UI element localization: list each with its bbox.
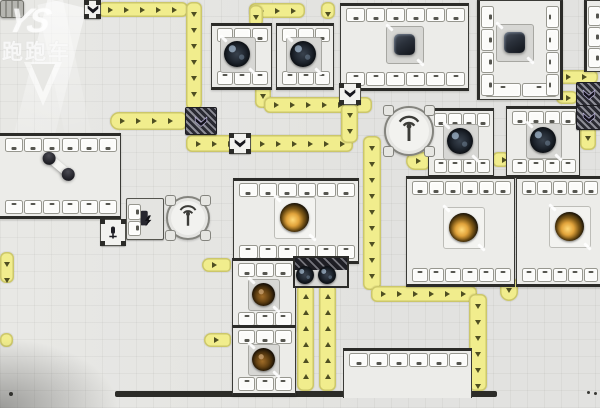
corner-mark bbox=[229, 149, 234, 154]
io-slot bbox=[5, 138, 23, 152]
debris-dot bbox=[9, 392, 13, 396]
belt-arrow bbox=[156, 7, 161, 13]
belt-arrow bbox=[429, 291, 434, 297]
fan-machine-plate bbox=[286, 37, 322, 73]
fan-machine bbox=[224, 41, 250, 67]
belt-arrow bbox=[461, 291, 466, 297]
io-slot bbox=[349, 353, 368, 367]
belt-arrow bbox=[369, 274, 375, 279]
gold-machine-plate bbox=[549, 206, 591, 248]
bolt-icon bbox=[383, 146, 394, 157]
triangle-badge-icon bbox=[24, 62, 62, 106]
amber-machine-plate bbox=[248, 344, 280, 376]
bolt-icon bbox=[200, 195, 211, 206]
belt-arrow bbox=[475, 304, 481, 309]
io-slot bbox=[537, 181, 551, 195]
io-slot bbox=[369, 353, 388, 367]
belt-arrow bbox=[303, 342, 309, 347]
io-slot bbox=[429, 181, 445, 195]
belt-arrow bbox=[369, 162, 375, 167]
belt-arrow bbox=[4, 262, 10, 267]
io-slot bbox=[479, 268, 495, 282]
belt-arrow bbox=[325, 358, 331, 363]
filter-device[interactable] bbox=[339, 83, 361, 105]
game-viewport: YS 跑跑车 bbox=[0, 0, 600, 408]
fan-machine-plate bbox=[526, 123, 562, 159]
corner-vignette bbox=[0, 338, 120, 408]
io-slot bbox=[406, 72, 425, 86]
corner-mark bbox=[84, 14, 89, 19]
io-slot bbox=[449, 353, 468, 367]
io-slot bbox=[406, 8, 425, 22]
corner-mark bbox=[100, 219, 105, 224]
bolt-icon bbox=[165, 195, 176, 206]
belt-arrow bbox=[120, 118, 125, 124]
amber-machine-plate bbox=[248, 279, 280, 311]
corner-mark bbox=[96, 14, 101, 19]
io-slot bbox=[275, 263, 292, 277]
io-slot bbox=[275, 330, 292, 344]
io-slot bbox=[568, 268, 582, 282]
beacon-building[interactable] bbox=[384, 106, 434, 156]
belt-arrow bbox=[322, 102, 327, 108]
building-assembler-e[interactable] bbox=[584, 0, 600, 72]
belt-arrow bbox=[212, 262, 217, 268]
belt-arrow bbox=[260, 141, 265, 147]
belt-arrow bbox=[475, 336, 481, 341]
gold-machine bbox=[555, 212, 584, 241]
io-slot bbox=[62, 200, 80, 214]
belt-arrow bbox=[290, 102, 295, 108]
belt-arrow bbox=[445, 291, 450, 297]
belt-arrow bbox=[306, 102, 311, 108]
belt-arrow bbox=[253, 15, 259, 20]
io-slot bbox=[448, 159, 461, 173]
io-slot bbox=[568, 181, 582, 195]
belt-arrow bbox=[191, 92, 197, 97]
belt-arrow bbox=[212, 141, 217, 147]
belt-arrow bbox=[369, 146, 375, 151]
belt-arrow bbox=[506, 288, 512, 293]
io-slot bbox=[445, 268, 461, 282]
cube-machine-plate bbox=[496, 24, 534, 62]
io-slot bbox=[234, 71, 250, 85]
fan-machine-plate bbox=[443, 124, 479, 160]
belt-arrow bbox=[172, 7, 177, 13]
bolt-icon bbox=[424, 105, 435, 116]
gold-machine bbox=[449, 213, 478, 242]
building-warehouse-o[interactable] bbox=[0, 133, 121, 219]
belt-arrow bbox=[152, 118, 157, 124]
io-slot bbox=[412, 181, 428, 195]
io-slot bbox=[512, 159, 527, 173]
filter-device[interactable] bbox=[84, 0, 101, 19]
belt-arrow bbox=[369, 242, 375, 247]
io-slot bbox=[80, 200, 98, 214]
loader-icon bbox=[105, 224, 121, 241]
belt-arrow bbox=[303, 374, 309, 379]
fan-machine bbox=[530, 127, 556, 153]
belt-arrow bbox=[108, 7, 113, 13]
item-cart[interactable] bbox=[0, 0, 24, 18]
rotor-icon bbox=[296, 266, 314, 284]
corner-mark bbox=[229, 133, 234, 138]
merger-device[interactable] bbox=[576, 82, 600, 107]
conveyor-belt[interactable] bbox=[319, 284, 336, 391]
io-slot bbox=[434, 159, 447, 173]
io-slot bbox=[561, 111, 576, 125]
belt-arrow bbox=[369, 226, 375, 231]
io-slot bbox=[495, 181, 511, 195]
chevron-icon bbox=[343, 88, 357, 100]
belt-arrow bbox=[416, 158, 421, 164]
io-slot bbox=[238, 330, 255, 344]
belt-arrow bbox=[369, 258, 375, 263]
io-slot bbox=[584, 181, 598, 195]
amber-machine bbox=[252, 283, 275, 306]
io-slot bbox=[588, 6, 600, 26]
gold-machine-plate bbox=[274, 197, 316, 239]
corner-mark bbox=[356, 83, 361, 88]
belt-arrow bbox=[347, 113, 353, 118]
belt-arrow bbox=[582, 74, 587, 80]
io-slot bbox=[553, 268, 567, 282]
io-slot bbox=[446, 8, 465, 22]
belt-arrow bbox=[381, 291, 386, 297]
io-slot bbox=[366, 72, 385, 86]
io-slot bbox=[446, 72, 465, 86]
io-slot bbox=[24, 200, 42, 214]
belt-arrow bbox=[292, 141, 297, 147]
io-slot bbox=[128, 204, 141, 220]
corner-mark bbox=[84, 0, 89, 5]
io-slot bbox=[445, 181, 461, 195]
belt-arrow bbox=[325, 310, 331, 315]
belt-arrow bbox=[325, 12, 331, 17]
conveyor-belt[interactable] bbox=[341, 103, 358, 143]
io-slot bbox=[481, 29, 494, 51]
io-slot bbox=[537, 268, 551, 282]
amber-machine bbox=[252, 348, 275, 371]
io-slot bbox=[588, 27, 600, 47]
belt-arrow bbox=[325, 294, 331, 299]
belt-arrow bbox=[397, 291, 402, 297]
belt-arrow bbox=[475, 320, 481, 325]
conveyor-belt[interactable] bbox=[371, 286, 477, 302]
io-slot bbox=[481, 52, 494, 74]
belt-arrow bbox=[475, 368, 481, 373]
belt-arrow bbox=[196, 141, 201, 147]
conveyor-belt[interactable] bbox=[0, 333, 13, 347]
conveyor-belt[interactable] bbox=[321, 2, 335, 19]
io-slot bbox=[217, 71, 233, 85]
belt-arrow bbox=[325, 374, 331, 379]
corner-mark bbox=[339, 83, 344, 88]
io-slot bbox=[366, 8, 385, 22]
fan-machine bbox=[447, 128, 473, 154]
belt-arrow bbox=[324, 141, 329, 147]
belt-arrow bbox=[303, 326, 309, 331]
conveyor-belt[interactable] bbox=[98, 2, 188, 17]
belt-arrow bbox=[274, 102, 279, 108]
filter-device[interactable] bbox=[229, 133, 251, 154]
conveyor-belt[interactable] bbox=[363, 136, 381, 290]
io-slot bbox=[278, 183, 297, 197]
io-slot bbox=[256, 377, 273, 391]
io-slot bbox=[429, 268, 445, 282]
io-slot bbox=[546, 6, 559, 28]
belt-arrow bbox=[303, 310, 309, 315]
belt-arrow bbox=[168, 118, 173, 124]
belt-arrow bbox=[566, 95, 571, 101]
debris-dot bbox=[594, 392, 597, 395]
io-slot bbox=[409, 353, 428, 367]
building-depot-n[interactable] bbox=[343, 348, 472, 398]
belt-arrow bbox=[140, 7, 145, 13]
merger-device[interactable] bbox=[185, 107, 217, 135]
antenna-icon bbox=[393, 113, 425, 150]
belt-arrow bbox=[325, 342, 331, 347]
chevron-icon bbox=[233, 138, 247, 150]
io-slot bbox=[238, 377, 255, 391]
io-slot bbox=[256, 312, 273, 326]
bolt-icon bbox=[200, 230, 211, 241]
corner-mark bbox=[339, 100, 344, 105]
io-slot bbox=[462, 181, 478, 195]
gold-machine-plate bbox=[443, 207, 485, 249]
belt-arrow bbox=[585, 136, 591, 141]
belt-arrow bbox=[191, 60, 197, 65]
rotor-icon bbox=[318, 266, 336, 284]
io-slot bbox=[62, 138, 80, 152]
io-slot bbox=[412, 268, 428, 282]
io-slot bbox=[584, 268, 598, 282]
io-slot bbox=[481, 74, 494, 96]
belt-arrow bbox=[191, 76, 197, 81]
belt-arrow bbox=[191, 28, 197, 33]
belt-arrow bbox=[475, 352, 481, 357]
io-slot bbox=[561, 159, 576, 173]
conveyor-belt[interactable] bbox=[297, 284, 314, 391]
cube-machine bbox=[394, 34, 415, 55]
io-slot bbox=[80, 138, 98, 152]
io-slot bbox=[298, 183, 317, 197]
belt-arrow bbox=[566, 74, 571, 80]
corner-mark bbox=[246, 133, 251, 138]
io-slot bbox=[386, 72, 405, 86]
io-slot bbox=[426, 72, 445, 86]
belt-arrow bbox=[347, 129, 353, 134]
loader-device[interactable] bbox=[100, 219, 126, 246]
io-slot bbox=[462, 268, 478, 282]
bolt-icon bbox=[424, 146, 435, 157]
io-slot bbox=[346, 8, 365, 22]
conveyor-belt[interactable] bbox=[202, 258, 231, 272]
corner-mark bbox=[356, 100, 361, 105]
corner-mark bbox=[246, 149, 251, 154]
io-slot bbox=[5, 200, 23, 214]
io-slot bbox=[43, 200, 61, 214]
conveyor-belt[interactable] bbox=[110, 112, 187, 130]
cube-machine bbox=[504, 32, 525, 53]
io-slot bbox=[481, 6, 494, 28]
belt-arrow bbox=[191, 12, 197, 17]
io-slot bbox=[239, 183, 258, 197]
belt-arrow bbox=[214, 337, 219, 343]
belt-arrow bbox=[303, 294, 309, 299]
striped-icon bbox=[581, 111, 597, 124]
corner-mark bbox=[100, 241, 105, 246]
io-slot bbox=[43, 138, 61, 152]
bolt-icon bbox=[383, 105, 394, 116]
io-slot bbox=[317, 183, 336, 197]
belt-arrow bbox=[308, 141, 313, 147]
io-slot bbox=[495, 268, 511, 282]
fan-machine-plate bbox=[220, 37, 256, 73]
dual-extractor[interactable] bbox=[293, 256, 349, 288]
io-slot bbox=[429, 353, 448, 367]
io-slot bbox=[99, 200, 117, 214]
io-slot bbox=[99, 138, 117, 152]
belt-arrow bbox=[275, 8, 280, 14]
io-slot bbox=[256, 330, 273, 344]
belt-arrow bbox=[191, 44, 197, 49]
io-slot bbox=[128, 221, 141, 237]
belt-arrow bbox=[124, 7, 129, 13]
io-slot bbox=[256, 263, 273, 277]
io-slot bbox=[546, 74, 559, 96]
belt-arrow bbox=[369, 178, 375, 183]
io-slot bbox=[239, 245, 258, 259]
io-slot bbox=[238, 312, 255, 326]
gold-machine bbox=[280, 203, 309, 232]
io-slot bbox=[386, 8, 405, 22]
io-slot bbox=[522, 268, 536, 282]
io-slot bbox=[275, 377, 292, 391]
belt-arrow bbox=[325, 326, 331, 331]
io-slot bbox=[528, 159, 543, 173]
belt-arrow bbox=[291, 8, 296, 14]
belt-arrow bbox=[136, 118, 141, 124]
io-slot bbox=[259, 245, 278, 259]
io-slot bbox=[426, 8, 445, 22]
conveyor-belt[interactable] bbox=[204, 333, 231, 347]
belt-arrow bbox=[369, 194, 375, 199]
beacon-building[interactable] bbox=[166, 196, 210, 240]
belt-arrow bbox=[4, 278, 10, 283]
io-slot bbox=[546, 29, 559, 51]
io-slot bbox=[588, 48, 600, 68]
io-slot bbox=[389, 353, 408, 367]
io-slot bbox=[545, 159, 560, 173]
conveyor-belt[interactable] bbox=[186, 135, 353, 152]
io-slot bbox=[479, 181, 495, 195]
io-slot bbox=[238, 263, 255, 277]
corner-mark bbox=[96, 0, 101, 5]
cube-machine-plate bbox=[386, 26, 424, 64]
belt-arrow bbox=[276, 141, 281, 147]
belt-arrow bbox=[475, 384, 481, 389]
io-slot bbox=[275, 312, 292, 326]
io-slot bbox=[337, 183, 356, 197]
debris-dot bbox=[587, 391, 590, 394]
bolt-icon bbox=[165, 230, 176, 241]
corner-mark bbox=[121, 241, 126, 246]
fan-machine bbox=[290, 41, 316, 67]
io-slot bbox=[282, 71, 297, 85]
merger-device[interactable] bbox=[576, 105, 600, 130]
belt-arrow bbox=[369, 210, 375, 215]
power-building[interactable] bbox=[126, 198, 164, 240]
io-slot bbox=[463, 159, 476, 173]
io-slot bbox=[24, 138, 42, 152]
conveyor-belt[interactable] bbox=[0, 252, 14, 283]
io-slot bbox=[522, 181, 536, 195]
belt-arrow bbox=[413, 291, 418, 297]
io-slot bbox=[553, 181, 567, 195]
antenna-icon bbox=[175, 203, 201, 234]
watermark-site-text: 跑跑车 bbox=[2, 36, 71, 66]
conveyor-belt[interactable] bbox=[186, 2, 202, 110]
io-slot bbox=[546, 52, 559, 74]
belt-arrow bbox=[303, 358, 309, 363]
striped-icon bbox=[581, 88, 597, 101]
io-slot bbox=[298, 71, 313, 85]
striped-icon bbox=[193, 115, 209, 128]
